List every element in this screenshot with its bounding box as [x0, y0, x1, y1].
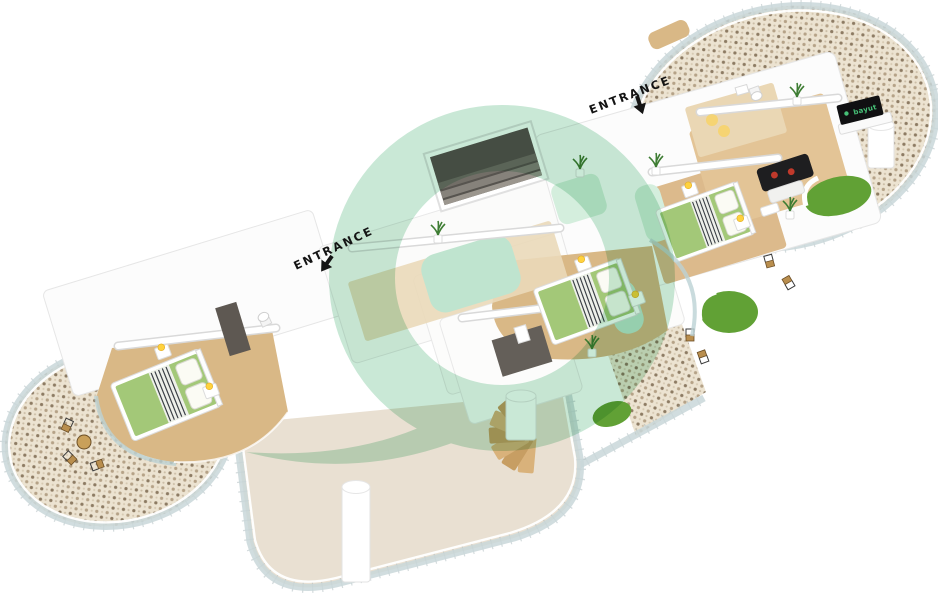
terrace-column: [342, 481, 370, 583]
floorplan-canvas: bayut ENTRANCE ENTRANCE: [0, 0, 938, 600]
sconce-glow: [718, 125, 730, 137]
balcony-table: [77, 435, 91, 449]
floorplan-page: bayut ENTRANCE ENTRANCE: [0, 0, 938, 600]
sconce-glow: [706, 114, 718, 126]
